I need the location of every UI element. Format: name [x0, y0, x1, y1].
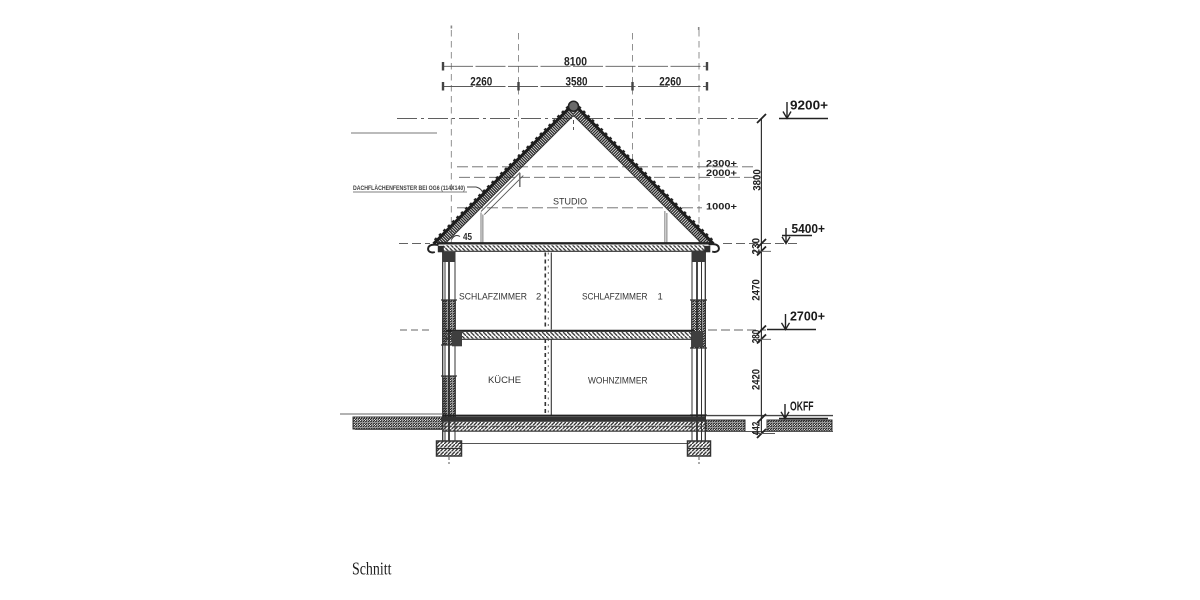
svg-text:DACHFLÄCHENFENSTER BEI OG6 (11: DACHFLÄCHENFENSTER BEI OG6 (114X140)	[353, 184, 465, 192]
svg-text:OKFF: OKFF	[790, 399, 814, 414]
svg-text:SCHLAFZIMMER: SCHLAFZIMMER	[582, 292, 648, 303]
svg-text:280: 280	[751, 330, 763, 344]
svg-text:1000+: 1000+	[706, 201, 737, 211]
svg-text:2470: 2470	[751, 279, 763, 301]
svg-text:3800: 3800	[752, 169, 764, 191]
svg-text:2700+: 2700+	[790, 309, 825, 324]
svg-text:45: 45	[463, 232, 472, 243]
svg-text:5400+: 5400+	[792, 221, 826, 236]
svg-text:2300+: 2300+	[706, 159, 737, 169]
svg-text:WOHNZIMMER: WOHNZIMMER	[588, 376, 648, 387]
svg-text:230: 230	[751, 238, 763, 255]
svg-text:2: 2	[536, 292, 541, 303]
svg-text:2260: 2260	[470, 75, 492, 89]
svg-text:3580: 3580	[566, 75, 588, 89]
svg-text:2260: 2260	[659, 75, 681, 89]
svg-text:KÜCHE: KÜCHE	[488, 375, 521, 386]
svg-text:2000+: 2000+	[706, 168, 737, 178]
svg-text:9200+: 9200+	[790, 98, 828, 113]
svg-text:8100: 8100	[564, 55, 587, 69]
svg-text:SCHLAFZIMMER: SCHLAFZIMMER	[459, 292, 527, 303]
svg-text:1: 1	[658, 292, 663, 303]
svg-text:2420: 2420	[751, 369, 763, 390]
svg-text:442: 442	[751, 422, 763, 436]
svg-text:Schnitt: Schnitt	[352, 559, 392, 579]
svg-text:STUDIO: STUDIO	[553, 197, 587, 208]
